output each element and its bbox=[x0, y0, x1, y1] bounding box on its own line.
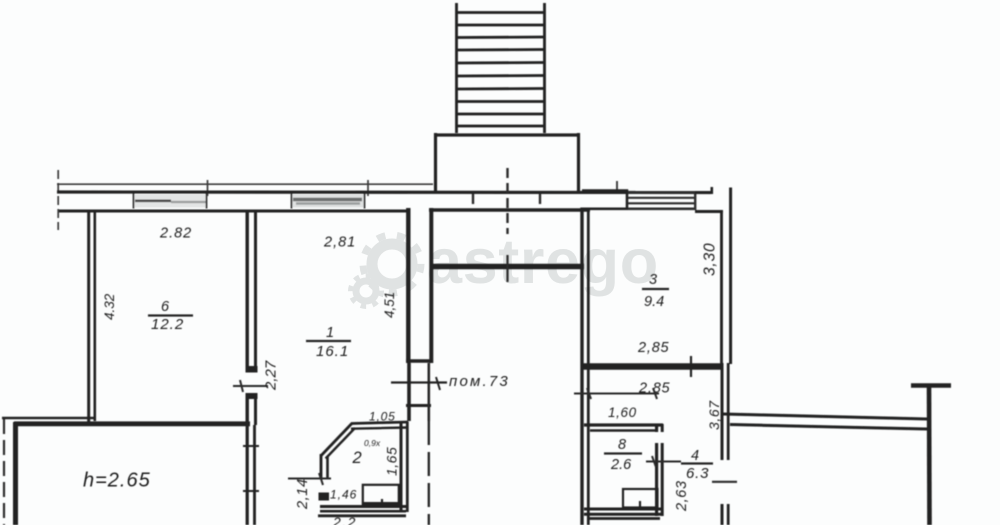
svg-text:2,14: 2,14 bbox=[295, 478, 311, 510]
svg-text:2,81: 2,81 bbox=[323, 235, 356, 251]
svg-text:h=2.65: h=2.65 bbox=[83, 470, 151, 492]
svg-text:2.2: 2.2 bbox=[332, 514, 357, 525]
svg-text:astrego: astrego bbox=[427, 227, 659, 297]
svg-text:1,60: 1,60 bbox=[608, 405, 637, 420]
svg-text:16.1: 16.1 bbox=[316, 343, 349, 360]
svg-text:3,30: 3,30 bbox=[702, 243, 719, 276]
svg-text:2,85: 2,85 bbox=[637, 340, 670, 356]
svg-text:12.2: 12.2 bbox=[151, 316, 184, 333]
svg-text:4,51: 4,51 bbox=[382, 292, 397, 318]
svg-text:4: 4 bbox=[691, 448, 699, 464]
svg-text:2: 2 bbox=[352, 449, 362, 467]
svg-text:2.82: 2.82 bbox=[159, 226, 192, 242]
svg-text:9.4: 9.4 bbox=[644, 294, 664, 310]
svg-text:1,65: 1,65 bbox=[384, 447, 400, 476]
svg-text:2,63: 2,63 bbox=[674, 480, 690, 512]
svg-text:4.32: 4.32 bbox=[102, 293, 117, 320]
svg-text:1,05: 1,05 bbox=[369, 410, 396, 424]
svg-text:2,27: 2,27 bbox=[263, 360, 280, 391]
svg-text:3,67: 3,67 bbox=[706, 400, 722, 430]
svg-text:1: 1 bbox=[326, 325, 334, 341]
svg-text:6.3: 6.3 bbox=[686, 465, 709, 482]
svg-text:2.6: 2.6 bbox=[610, 457, 632, 473]
svg-text:1,46: 1,46 bbox=[330, 488, 357, 502]
svg-text:8: 8 bbox=[618, 437, 626, 453]
svg-text:6: 6 bbox=[161, 299, 170, 315]
svg-text:0,9х: 0,9х bbox=[364, 438, 381, 448]
svg-text:пом.73: пом.73 bbox=[449, 373, 510, 390]
svg-text:3: 3 bbox=[649, 272, 657, 288]
